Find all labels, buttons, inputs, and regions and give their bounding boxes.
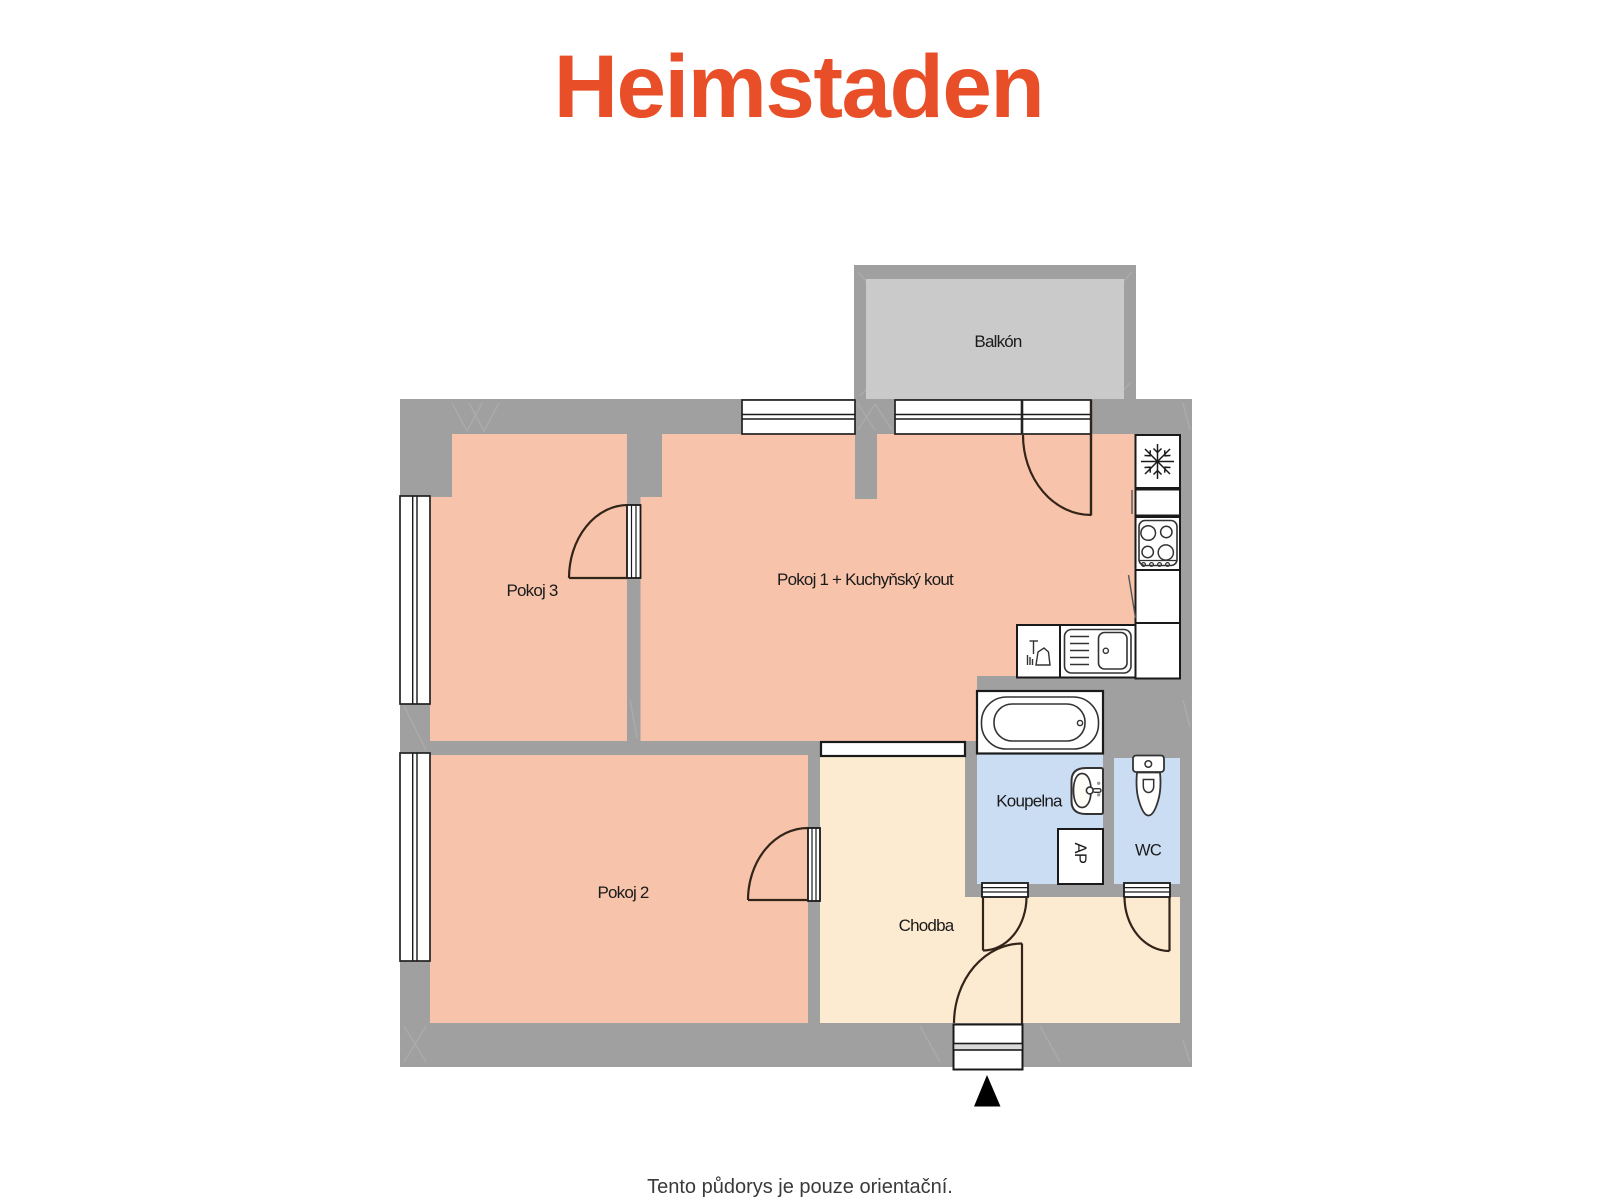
svg-text:Heimstaden: Heimstaden <box>554 36 1044 136</box>
svg-text:AP: AP <box>1071 842 1089 864</box>
svg-text:Balkón: Balkón <box>974 332 1022 351</box>
svg-text:Tento půdorys je pouze orienta: Tento půdorys je pouze orientační. <box>647 1176 953 1198</box>
svg-text:Pokoj 1 + Kuchyňský kout: Pokoj 1 + Kuchyňský kout <box>777 570 954 589</box>
svg-text:Chodba: Chodba <box>899 916 955 935</box>
svg-text:Pokoj 3: Pokoj 3 <box>506 581 557 600</box>
svg-text:Koupelna: Koupelna <box>996 792 1063 811</box>
svg-text:WC: WC <box>1135 842 1162 860</box>
svg-text:Pokoj 2: Pokoj 2 <box>597 883 648 902</box>
